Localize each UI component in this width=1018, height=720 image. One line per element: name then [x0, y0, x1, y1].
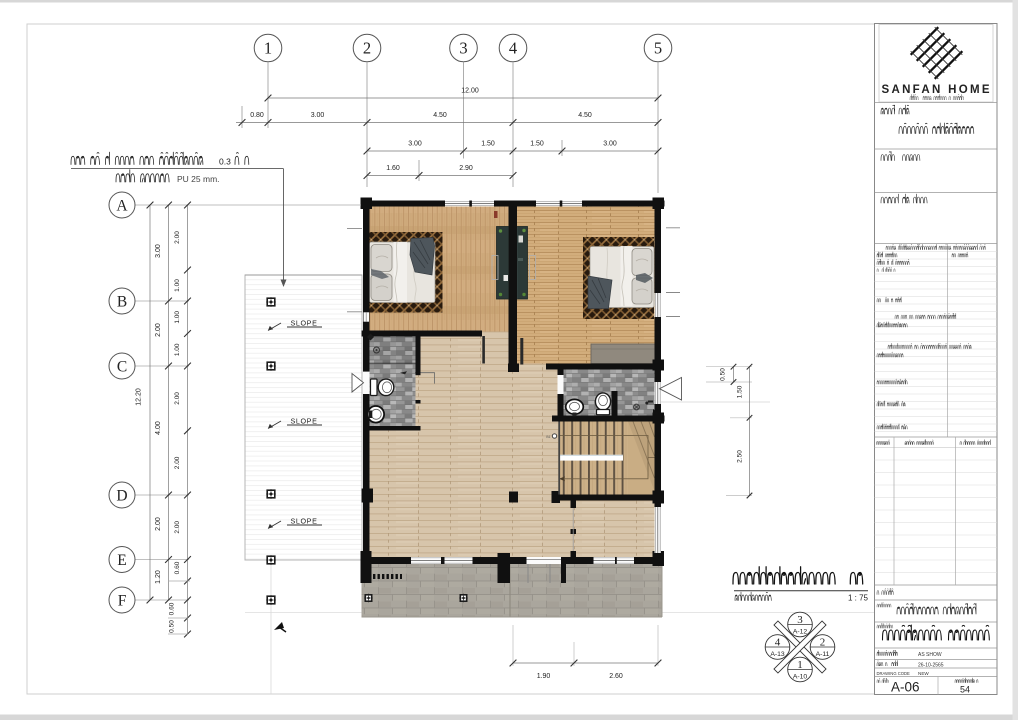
- svg-text:1 : 75: 1 : 75: [848, 594, 869, 603]
- svg-text:DRAWING CODE: DRAWING CODE: [877, 671, 911, 676]
- svg-text:SLOPE: SLOPE: [291, 319, 318, 328]
- svg-text:SANFAN HOME: SANFAN HOME: [882, 84, 992, 96]
- svg-text:4: 4: [509, 39, 517, 58]
- svg-text:0.60: 0.60: [169, 602, 176, 615]
- svg-text:A-13: A-13: [770, 651, 785, 658]
- svg-text:1.20: 1.20: [155, 570, 162, 584]
- svg-text:2.50: 2.50: [737, 450, 744, 463]
- svg-text:3: 3: [797, 614, 803, 626]
- svg-text:0.50: 0.50: [169, 620, 176, 633]
- svg-text:1.50: 1.50: [481, 141, 495, 148]
- svg-text:1.50: 1.50: [737, 385, 744, 398]
- svg-text:SLOPE: SLOPE: [291, 417, 318, 426]
- svg-text:2.00: 2.00: [174, 521, 181, 534]
- svg-text:2.60: 2.60: [609, 673, 623, 680]
- svg-text:2.00: 2.00: [174, 231, 181, 244]
- svg-text:A-06: A-06: [891, 680, 920, 695]
- svg-text:3: 3: [459, 39, 467, 58]
- svg-text:A-11: A-11: [816, 651, 830, 658]
- svg-text:3.00: 3.00: [408, 141, 422, 148]
- svg-text:A: A: [116, 198, 128, 215]
- svg-text:2.00: 2.00: [155, 517, 162, 531]
- svg-text:PU 25 mm.: PU 25 mm.: [177, 174, 220, 184]
- svg-text:1.50: 1.50: [530, 141, 544, 148]
- svg-text:0.60: 0.60: [174, 561, 181, 574]
- svg-text:1.60: 1.60: [386, 165, 400, 172]
- svg-text:12.00: 12.00: [461, 88, 479, 95]
- svg-text:3.00: 3.00: [155, 244, 162, 258]
- svg-text:B1: B1: [546, 435, 550, 439]
- svg-text:F: F: [118, 593, 127, 610]
- svg-text:SLOPE: SLOPE: [291, 517, 318, 526]
- svg-text:2.00: 2.00: [174, 392, 181, 405]
- svg-text:C: C: [117, 359, 127, 376]
- svg-text:2.00: 2.00: [155, 323, 162, 337]
- svg-text:A-12: A-12: [793, 629, 808, 636]
- svg-text:12.20: 12.20: [136, 388, 143, 406]
- svg-text:D: D: [116, 488, 127, 505]
- svg-text:4.50: 4.50: [433, 112, 447, 119]
- svg-text:1: 1: [797, 659, 803, 671]
- svg-text:0.3: 0.3: [219, 157, 231, 167]
- svg-text:1.00: 1.00: [174, 279, 181, 292]
- svg-text:1.00: 1.00: [174, 311, 181, 324]
- svg-text:2.90: 2.90: [459, 165, 473, 172]
- svg-text:2: 2: [363, 39, 371, 58]
- svg-text:AS SHOW: AS SHOW: [918, 652, 942, 658]
- svg-text:2.00: 2.00: [174, 456, 181, 469]
- svg-text:E: E: [117, 552, 126, 569]
- svg-text:1: 1: [264, 39, 272, 58]
- svg-text:4.50: 4.50: [578, 112, 592, 119]
- svg-text:1.00: 1.00: [174, 343, 181, 356]
- svg-text:3.00: 3.00: [311, 112, 325, 119]
- svg-text:0.80: 0.80: [250, 112, 264, 119]
- svg-text:B: B: [117, 294, 127, 311]
- svg-text:54: 54: [960, 685, 970, 695]
- svg-text:3.00: 3.00: [603, 141, 617, 148]
- svg-text:1.90: 1.90: [537, 673, 551, 680]
- svg-text:A-10: A-10: [793, 674, 808, 681]
- svg-text:2: 2: [820, 637, 826, 649]
- svg-text:4: 4: [775, 637, 781, 649]
- svg-text:NEW: NEW: [918, 671, 929, 676]
- svg-text:4.00: 4.00: [155, 421, 162, 435]
- svg-text:5: 5: [654, 39, 662, 58]
- svg-text:0.50: 0.50: [720, 368, 727, 381]
